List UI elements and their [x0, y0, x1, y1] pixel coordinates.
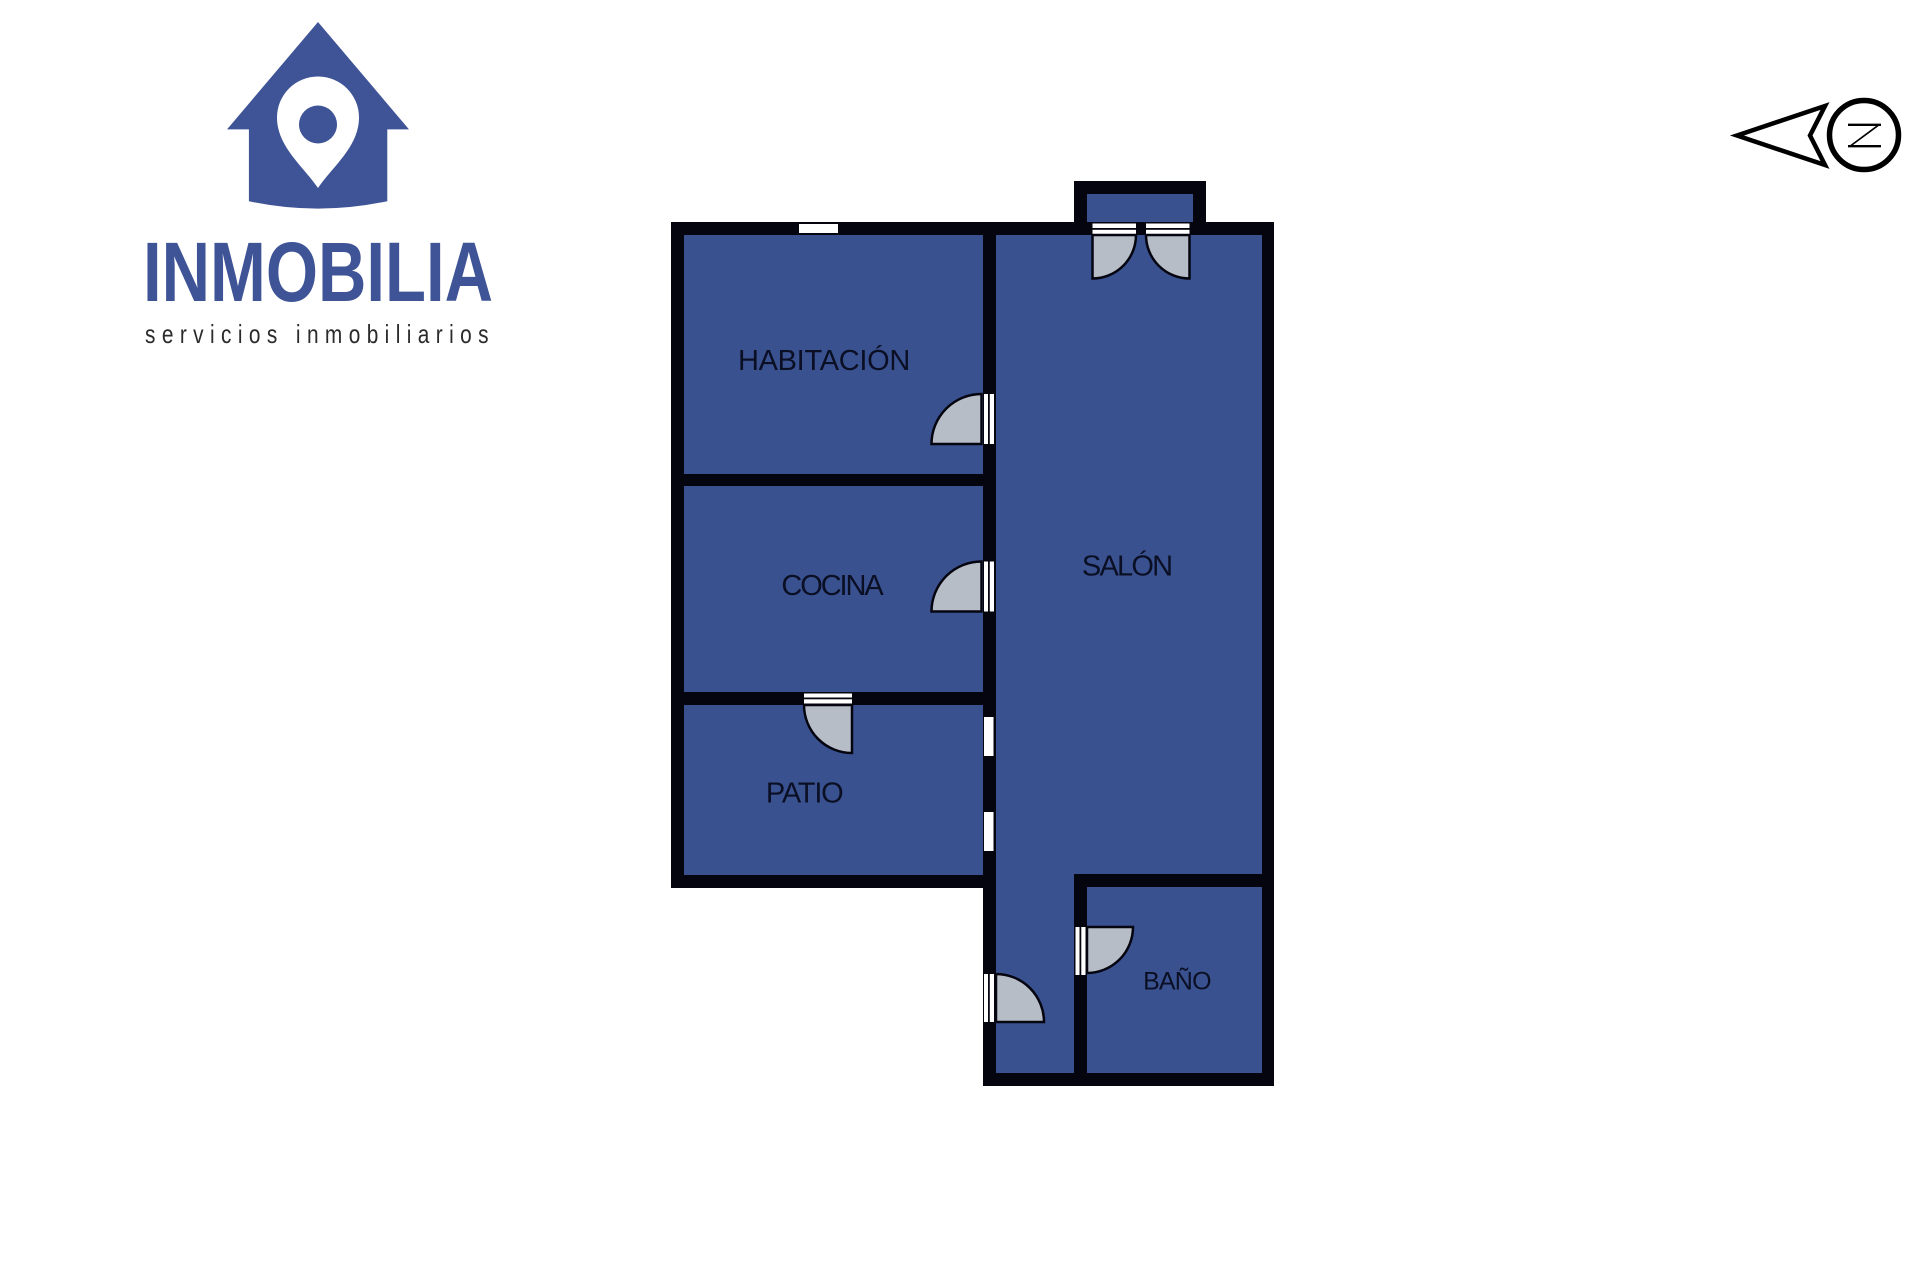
svg-text:HABITACIÓN: HABITACIÓN [738, 344, 910, 377]
svg-text:PATIO: PATIO [766, 778, 843, 810]
svg-text:servicios inmobiliarios: servicios inmobiliarios [145, 319, 495, 349]
svg-text:SALÓN: SALÓN [1082, 550, 1171, 583]
svg-text:BAÑO: BAÑO [1143, 967, 1211, 996]
svg-text:INMOBILIA: INMOBILIA [143, 225, 493, 319]
svg-text:COCINA: COCINA [781, 570, 884, 602]
